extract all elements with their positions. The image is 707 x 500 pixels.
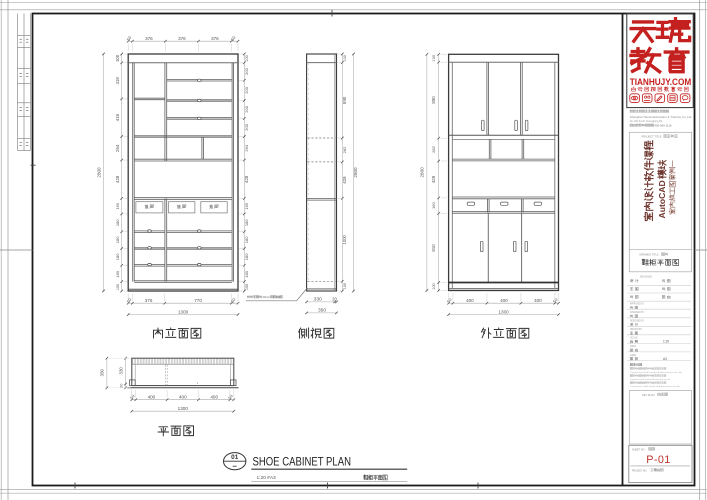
svg-text:1:20: 1:20	[663, 340, 669, 344]
svg-text:100: 100	[116, 284, 120, 290]
svg-text:SHOE CABINET PLAN: SHOE CABINET PLAN	[253, 454, 352, 468]
svg-text:PROJECT NO.: PROJECT NO.	[632, 468, 647, 472]
svg-text:190: 190	[431, 201, 436, 208]
svg-text:SCALE: SCALE	[630, 337, 638, 340]
svg-text:SHEET NO.: SHEET NO.	[632, 447, 645, 451]
svg-text:A3: A3	[663, 357, 667, 361]
svg-text:1300: 1300	[178, 406, 189, 411]
svg-text:180: 180	[244, 270, 249, 277]
svg-text:1300: 1300	[498, 309, 509, 314]
svg-text:400: 400	[466, 298, 474, 303]
svg-text:100: 100	[432, 283, 436, 289]
svg-text:Contractor shall verify all di: Contractor shall verify all dimensions o…	[630, 378, 671, 381]
svg-text:APPROVED BY: APPROVED BY	[630, 303, 644, 306]
svg-text:282: 282	[342, 146, 347, 153]
svg-text:180: 180	[115, 253, 120, 260]
svg-text:165: 165	[115, 202, 120, 209]
svg-text:428: 428	[115, 175, 120, 183]
svg-text:01: 01	[231, 454, 239, 461]
svg-text:200: 200	[244, 105, 249, 112]
svg-text:428: 428	[244, 175, 249, 183]
svg-text:200: 200	[244, 123, 249, 130]
svg-text:1300: 1300	[178, 309, 189, 314]
svg-text:428: 428	[342, 176, 347, 184]
svg-text:376: 376	[145, 36, 153, 41]
svg-text:200: 200	[244, 86, 249, 93]
svg-text:20: 20	[119, 384, 123, 388]
svg-text:350: 350	[318, 308, 326, 314]
svg-text:400: 400	[534, 298, 542, 303]
svg-text:180: 180	[115, 236, 120, 243]
svg-text:376: 376	[211, 36, 219, 41]
svg-text:890: 890	[431, 96, 436, 104]
svg-text:400-060-1116: 400-060-1116	[655, 123, 672, 127]
svg-text:2800: 2800	[419, 167, 424, 178]
svg-text:180: 180	[244, 236, 249, 243]
svg-text:100: 100	[343, 283, 347, 289]
svg-text:DESIGNED BY: DESIGNED BY	[630, 320, 644, 323]
svg-text:TIANHUJY.COM: TIANHUJY.COM	[630, 76, 692, 87]
svg-text:100: 100	[343, 55, 347, 61]
svg-text:180: 180	[244, 219, 249, 226]
svg-text:376: 376	[178, 36, 186, 41]
svg-text:AutoCAD: AutoCAD	[657, 180, 667, 218]
svg-text:770: 770	[194, 298, 202, 303]
svg-text:100: 100	[245, 55, 249, 61]
svg-text:Contractor shall verify all di: Contractor shall verify all dimensions o…	[630, 371, 683, 374]
svg-text:Contractor shall verify all di: Contractor shall verify all dimensions o…	[630, 385, 681, 388]
svg-text:330: 330	[314, 297, 322, 303]
svg-text:P-01: P-01	[646, 454, 670, 466]
svg-text:DATE: DATE	[630, 345, 636, 348]
svg-text:264: 264	[244, 144, 249, 151]
svg-text:810: 810	[431, 244, 436, 252]
svg-text:200: 200	[244, 67, 249, 74]
svg-text:SIZE: SIZE	[630, 354, 636, 357]
svg-text:100: 100	[115, 54, 120, 62]
svg-text:428: 428	[431, 175, 436, 183]
svg-text:400: 400	[210, 394, 218, 399]
svg-text:400: 400	[500, 298, 508, 303]
svg-text:DRAWN BY: DRAWN BY	[630, 328, 642, 331]
svg-text:1000: 1000	[342, 234, 347, 244]
svg-text:DRAWING TITLE: DRAWING TITLE	[640, 253, 659, 257]
svg-text:264: 264	[115, 144, 120, 152]
svg-text:100: 100	[245, 284, 249, 290]
svg-text:20mm: 20mm	[263, 295, 271, 299]
svg-text:1:20 #A3: 1:20 #A3	[257, 475, 277, 481]
svg-text:418: 418	[115, 77, 120, 85]
svg-text:20: 20	[332, 297, 337, 302]
svg-text:400: 400	[179, 394, 187, 399]
svg-text:KEY PLAN: KEY PLAN	[642, 393, 655, 397]
svg-text:890: 890	[342, 96, 347, 104]
svg-text:100: 100	[432, 55, 436, 61]
svg-text:376: 376	[145, 298, 153, 303]
svg-text:180: 180	[115, 219, 120, 226]
svg-text:180: 180	[115, 270, 120, 277]
svg-text:282: 282	[431, 145, 436, 152]
svg-text:CHECKED BY: CHECKED BY	[630, 311, 644, 314]
svg-text:2800: 2800	[97, 167, 102, 178]
svg-text:2800: 2800	[353, 167, 358, 178]
svg-text:DESIGNED: DESIGNED	[640, 275, 652, 278]
svg-text:350: 350	[99, 368, 104, 376]
svg-text:400: 400	[148, 394, 156, 399]
svg-text:418: 418	[115, 113, 120, 121]
svg-text:330: 330	[118, 367, 123, 375]
svg-text:165: 165	[244, 202, 249, 209]
svg-text:180: 180	[244, 253, 249, 260]
svg-text:PROJECT TITLE: PROJECT TITLE	[642, 135, 662, 139]
